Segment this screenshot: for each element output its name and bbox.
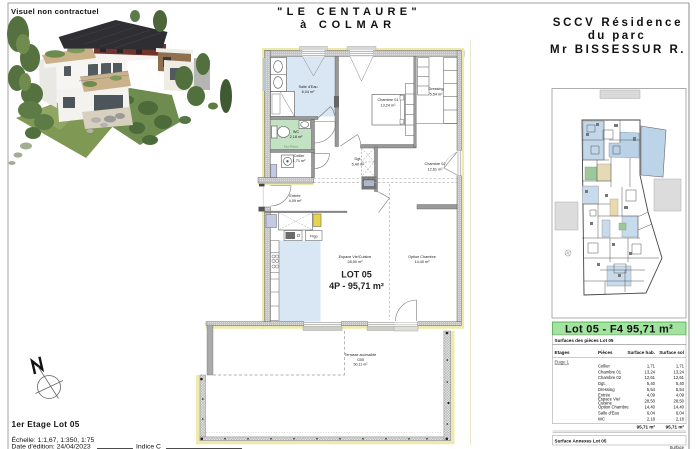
svg-text:Salle d'Eau: Salle d'Eau — [298, 85, 317, 89]
svg-text:Cellier: Cellier — [598, 364, 610, 369]
svg-text:4,09 m²: 4,09 m² — [289, 199, 303, 203]
svg-text:14,40: 14,40 — [645, 405, 656, 410]
svg-text:LOT 05: LOT 05 — [341, 270, 372, 280]
svg-text:13,24: 13,24 — [645, 369, 656, 374]
svg-text:Surface sol: Surface sol — [659, 350, 684, 355]
svg-text:13,24 m²: 13,24 m² — [381, 104, 397, 108]
svg-text:WC: WC — [293, 130, 300, 134]
svg-text:"LE CENTAURE": "LE CENTAURE" — [277, 6, 421, 18]
svg-text:Indice C: Indice C — [136, 444, 161, 449]
svg-text:Visuel non contractuel: Visuel non contractuel — [11, 7, 99, 16]
svg-text:14,40 m²: 14,40 m² — [415, 260, 431, 264]
svg-text:Faux-Plafond: Faux-Plafond — [284, 146, 299, 149]
svg-text:4P - 95,71 m²: 4P - 95,71 m² — [329, 281, 384, 291]
svg-text:Option Chambre: Option Chambre — [408, 255, 436, 259]
svg-text:Cellier: Cellier — [294, 154, 305, 158]
svg-text:du parc: du parc — [588, 30, 646, 42]
svg-text:Espace Vie/Cuisine: Espace Vie/Cuisine — [339, 255, 372, 259]
svg-text:12,61 m²: 12,61 m² — [428, 168, 444, 172]
svg-text:Chambre 01: Chambre 01 — [378, 98, 399, 102]
svg-text:4,09: 4,09 — [647, 393, 656, 398]
svg-text:1,71: 1,71 — [647, 364, 656, 369]
svg-text:Salle d'Eau: Salle d'Eau — [598, 411, 620, 416]
svg-text:à COLMAR: à COLMAR — [300, 19, 396, 31]
svg-text:Etage 1: Etage 1 — [555, 360, 570, 365]
svg-text:Lot 05 - F4 95,71 m²: Lot 05 - F4 95,71 m² — [565, 324, 673, 336]
svg-text:WC: WC — [598, 416, 605, 421]
svg-text:12,61: 12,61 — [674, 375, 685, 380]
svg-text:Dressing: Dressing — [598, 387, 615, 392]
svg-text:2,18: 2,18 — [647, 416, 656, 421]
svg-text:Chambre 01: Chambre 01 — [598, 369, 622, 374]
svg-text:Surface: Surface — [670, 445, 685, 449]
svg-text:6,04 m²: 6,04 m² — [302, 90, 316, 94]
svg-text:5,54: 5,54 — [676, 387, 685, 392]
svg-text:95,71 m²: 95,71 m² — [666, 425, 685, 430]
svg-text:2,18: 2,18 — [676, 416, 685, 421]
svg-text:Entrée: Entrée — [289, 194, 300, 198]
svg-text:Dressing: Dressing — [429, 87, 444, 91]
svg-text:Chambre 02: Chambre 02 — [425, 162, 446, 166]
svg-text:4,09: 4,09 — [676, 393, 685, 398]
svg-text:6,04: 6,04 — [676, 411, 685, 416]
svg-text:13,24: 13,24 — [674, 369, 685, 374]
svg-text:G05: G05 — [357, 358, 364, 362]
svg-text:Dgt.: Dgt. — [355, 157, 362, 161]
svg-text:1,71: 1,71 — [676, 364, 685, 369]
svg-text:1,71 m²: 1,71 m² — [293, 159, 307, 163]
svg-text:Surfaces des pièces Lot 05: Surfaces des pièces Lot 05 — [555, 338, 614, 343]
svg-text:5,54: 5,54 — [647, 387, 656, 392]
svg-text:28,50: 28,50 — [645, 399, 656, 404]
svg-text:1er Etage Lot 05: 1er Etage Lot 05 — [12, 420, 80, 429]
svg-text:Dgt.: Dgt. — [598, 381, 606, 386]
svg-text:Surface Annexes Lot 05: Surface Annexes Lot 05 — [555, 438, 607, 443]
svg-text:Terrasse accessible: Terrasse accessible — [345, 353, 377, 357]
svg-text:95,71 m²: 95,71 m² — [637, 425, 656, 430]
svg-text:14,40: 14,40 — [674, 405, 685, 410]
svg-text:SCCV Résidence: SCCV Résidence — [553, 17, 683, 29]
svg-text:Option Chambre: Option Chambre — [598, 405, 629, 410]
svg-text:Pièces: Pièces — [598, 350, 613, 355]
svg-text:28,50 m²: 28,50 m² — [348, 260, 364, 264]
svg-text:5,40: 5,40 — [647, 381, 656, 386]
svg-text:50,11 m²: 50,11 m² — [354, 363, 369, 367]
svg-text:5,40 m²: 5,40 m² — [352, 163, 366, 167]
svg-text:Chambre 02: Chambre 02 — [598, 375, 622, 380]
svg-text:Mr BISSESSUR R.: Mr BISSESSUR R. — [550, 44, 686, 56]
svg-text:2,18 m²: 2,18 m² — [290, 135, 304, 139]
svg-text:12,61: 12,61 — [645, 375, 656, 380]
svg-text:5,40: 5,40 — [676, 381, 685, 386]
svg-text:28,50: 28,50 — [674, 399, 685, 404]
svg-text:Date d'édition: 24/04/2023: Date d'édition: 24/04/2023 — [12, 444, 91, 449]
svg-text:5,54 m²: 5,54 m² — [430, 93, 444, 97]
svg-text:Frigo: Frigo — [310, 235, 318, 239]
svg-text:Surface hab.: Surface hab. — [627, 350, 655, 355]
svg-text:Etages: Etages — [555, 350, 571, 355]
svg-text:6,04: 6,04 — [647, 411, 656, 416]
